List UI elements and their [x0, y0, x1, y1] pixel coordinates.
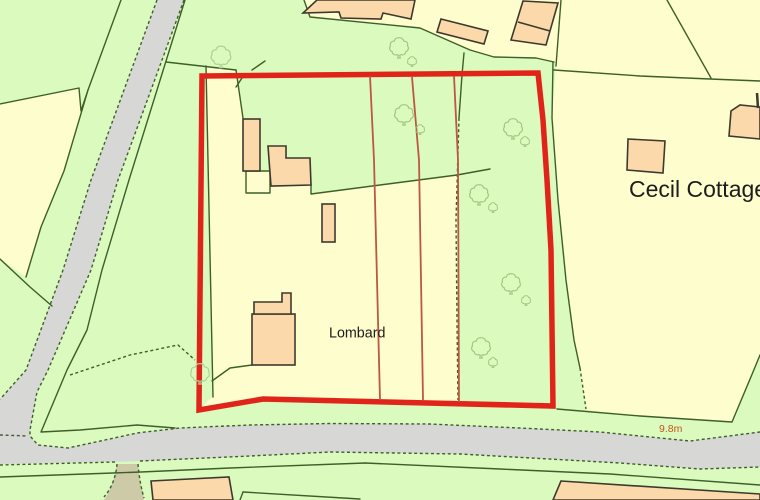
- svg-text:Cecil Cottage: Cecil Cottage: [629, 176, 760, 202]
- svg-text:9.8m: 9.8m: [659, 423, 683, 435]
- svg-text:Lombard: Lombard: [329, 326, 385, 342]
